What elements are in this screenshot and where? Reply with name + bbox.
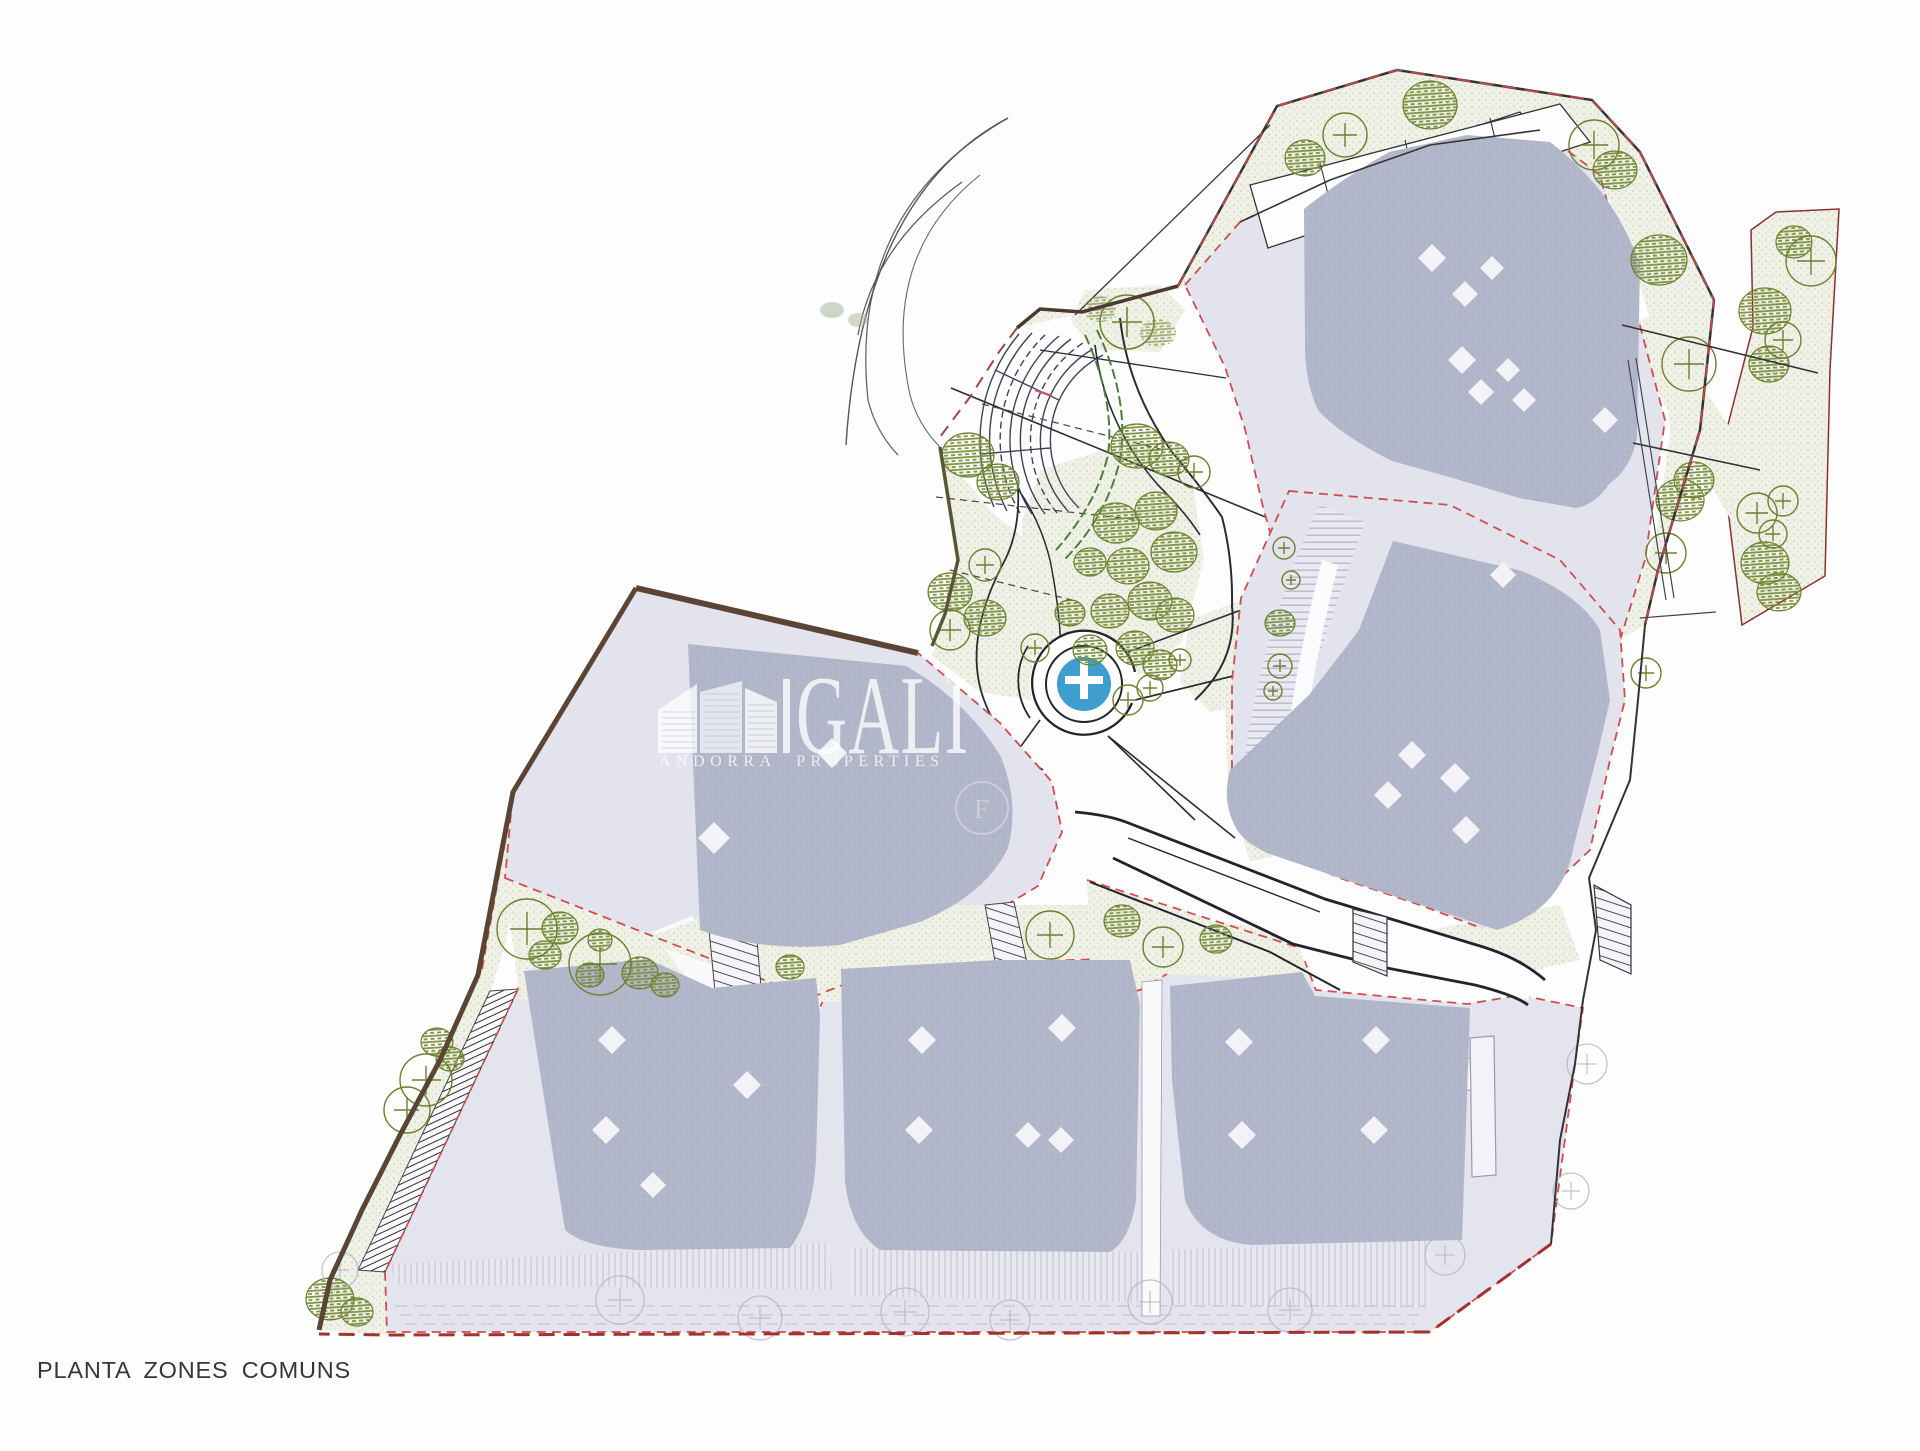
svg-text:ANDORRA PROPERTIES: ANDORRA PROPERTIES [659, 753, 945, 770]
svg-text:PLANTA ZONES COMUNS: PLANTA ZONES COMUNS [37, 1357, 351, 1383]
svg-text:F: F [974, 794, 989, 824]
